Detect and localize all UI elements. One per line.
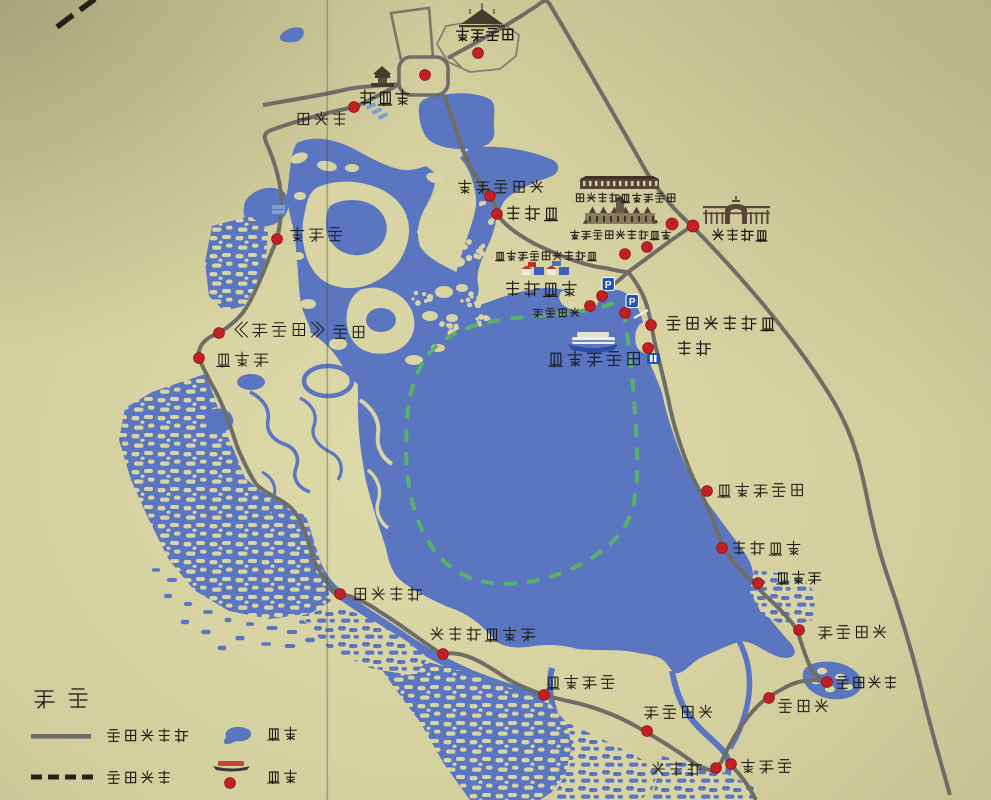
svg-text:P: P [605, 280, 612, 291]
svg-text:P: P [629, 297, 636, 308]
